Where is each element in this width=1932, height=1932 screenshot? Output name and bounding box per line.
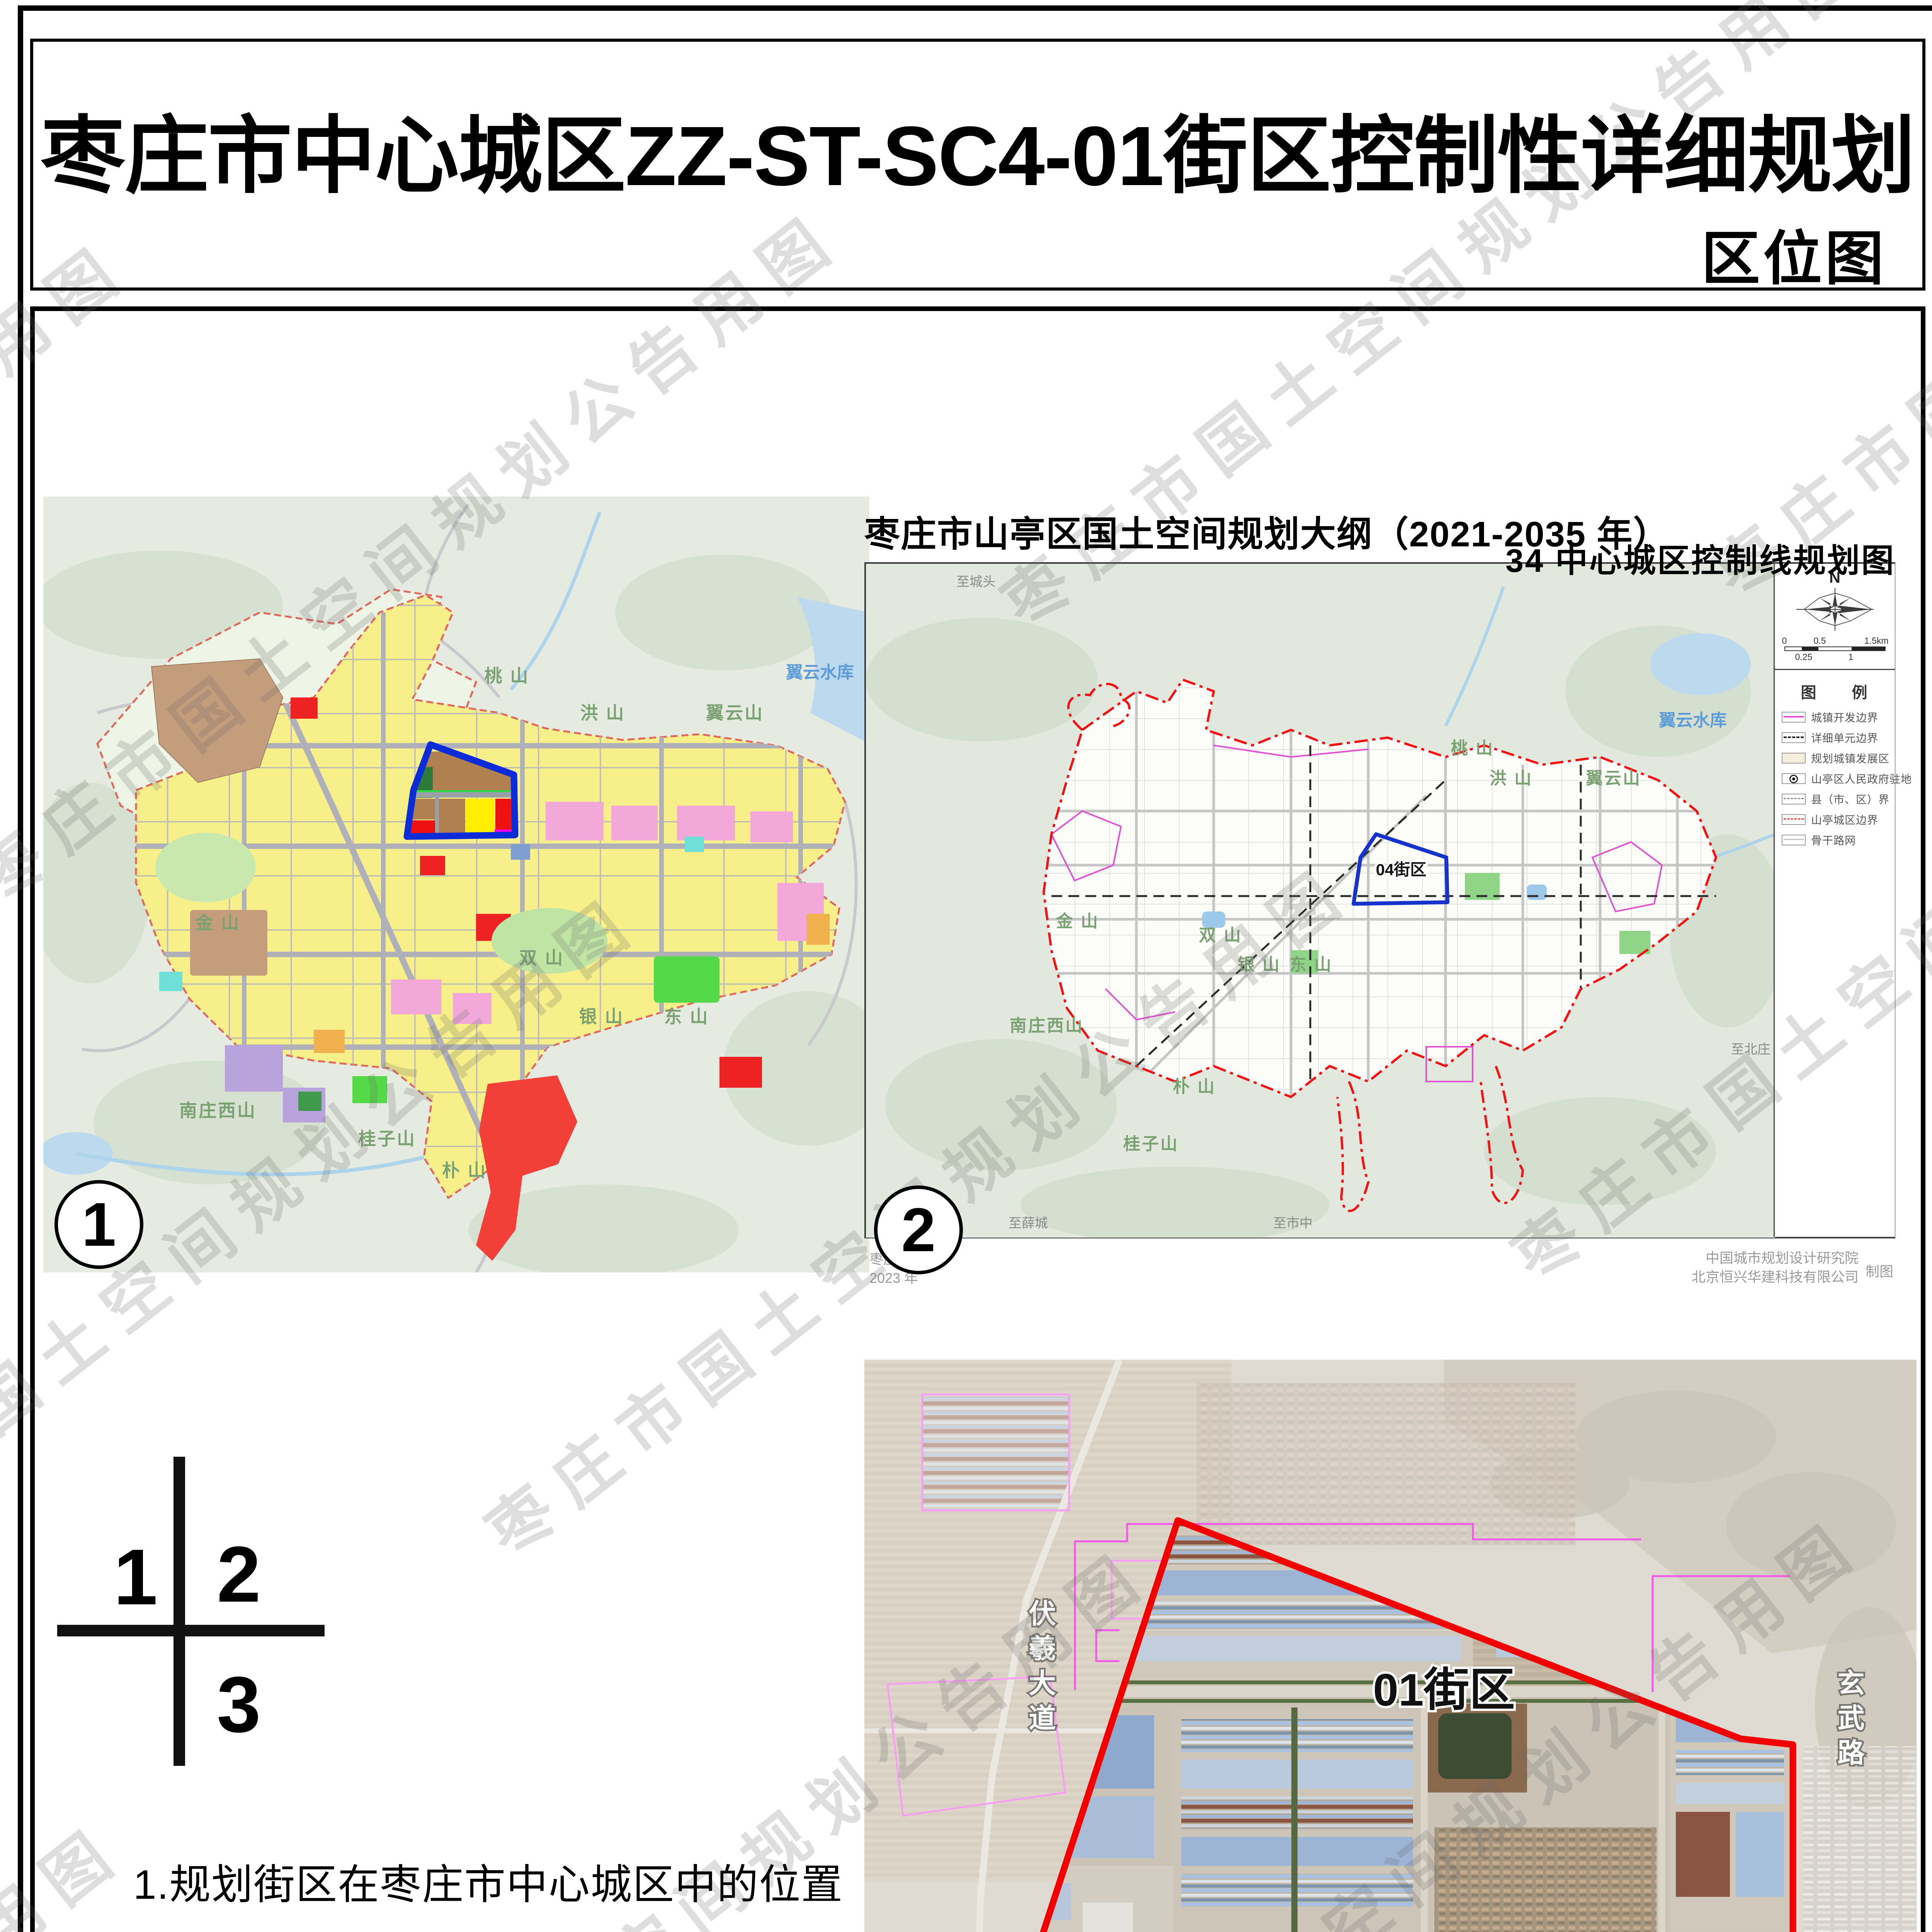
page-subtitle: 区位图: [1701, 211, 1887, 296]
map2-credit-line1: 中国城市规划设计研究院: [1565, 1249, 1859, 1268]
key-diagram-2: 2: [217, 1529, 261, 1620]
map2-subtitle: 34 中心城区控制线规划图: [1121, 535, 1895, 582]
map2-credits: 中国城市规划设计研究院 北京恒兴华建科技有限公司: [1565, 1249, 1859, 1286]
title-box: 枣庄市中心城区ZZ-ST-SC4-01街区控制性详细规划 区位图: [30, 39, 1925, 291]
map2-number-badge: 2: [874, 1185, 963, 1274]
key-diagram-horizontal-line: [57, 1625, 325, 1636]
map2-credit-line2: 北京恒兴华建科技有限公司: [1565, 1268, 1859, 1287]
map1-number-badge: 1: [54, 1180, 143, 1269]
page-title: 枣庄市中心城区ZZ-ST-SC4-01街区控制性详细规划: [33, 87, 1922, 209]
key-diagram-vertical-line: [173, 1457, 185, 1766]
key-diagram-3: 3: [217, 1659, 261, 1750]
map2-credit-suffix: 制图: [1866, 1260, 1893, 1281]
key-diagram-1: 1: [114, 1532, 158, 1623]
caption-1: 1.规划街区在枣庄市中心城区中的位置: [133, 1851, 843, 1911]
